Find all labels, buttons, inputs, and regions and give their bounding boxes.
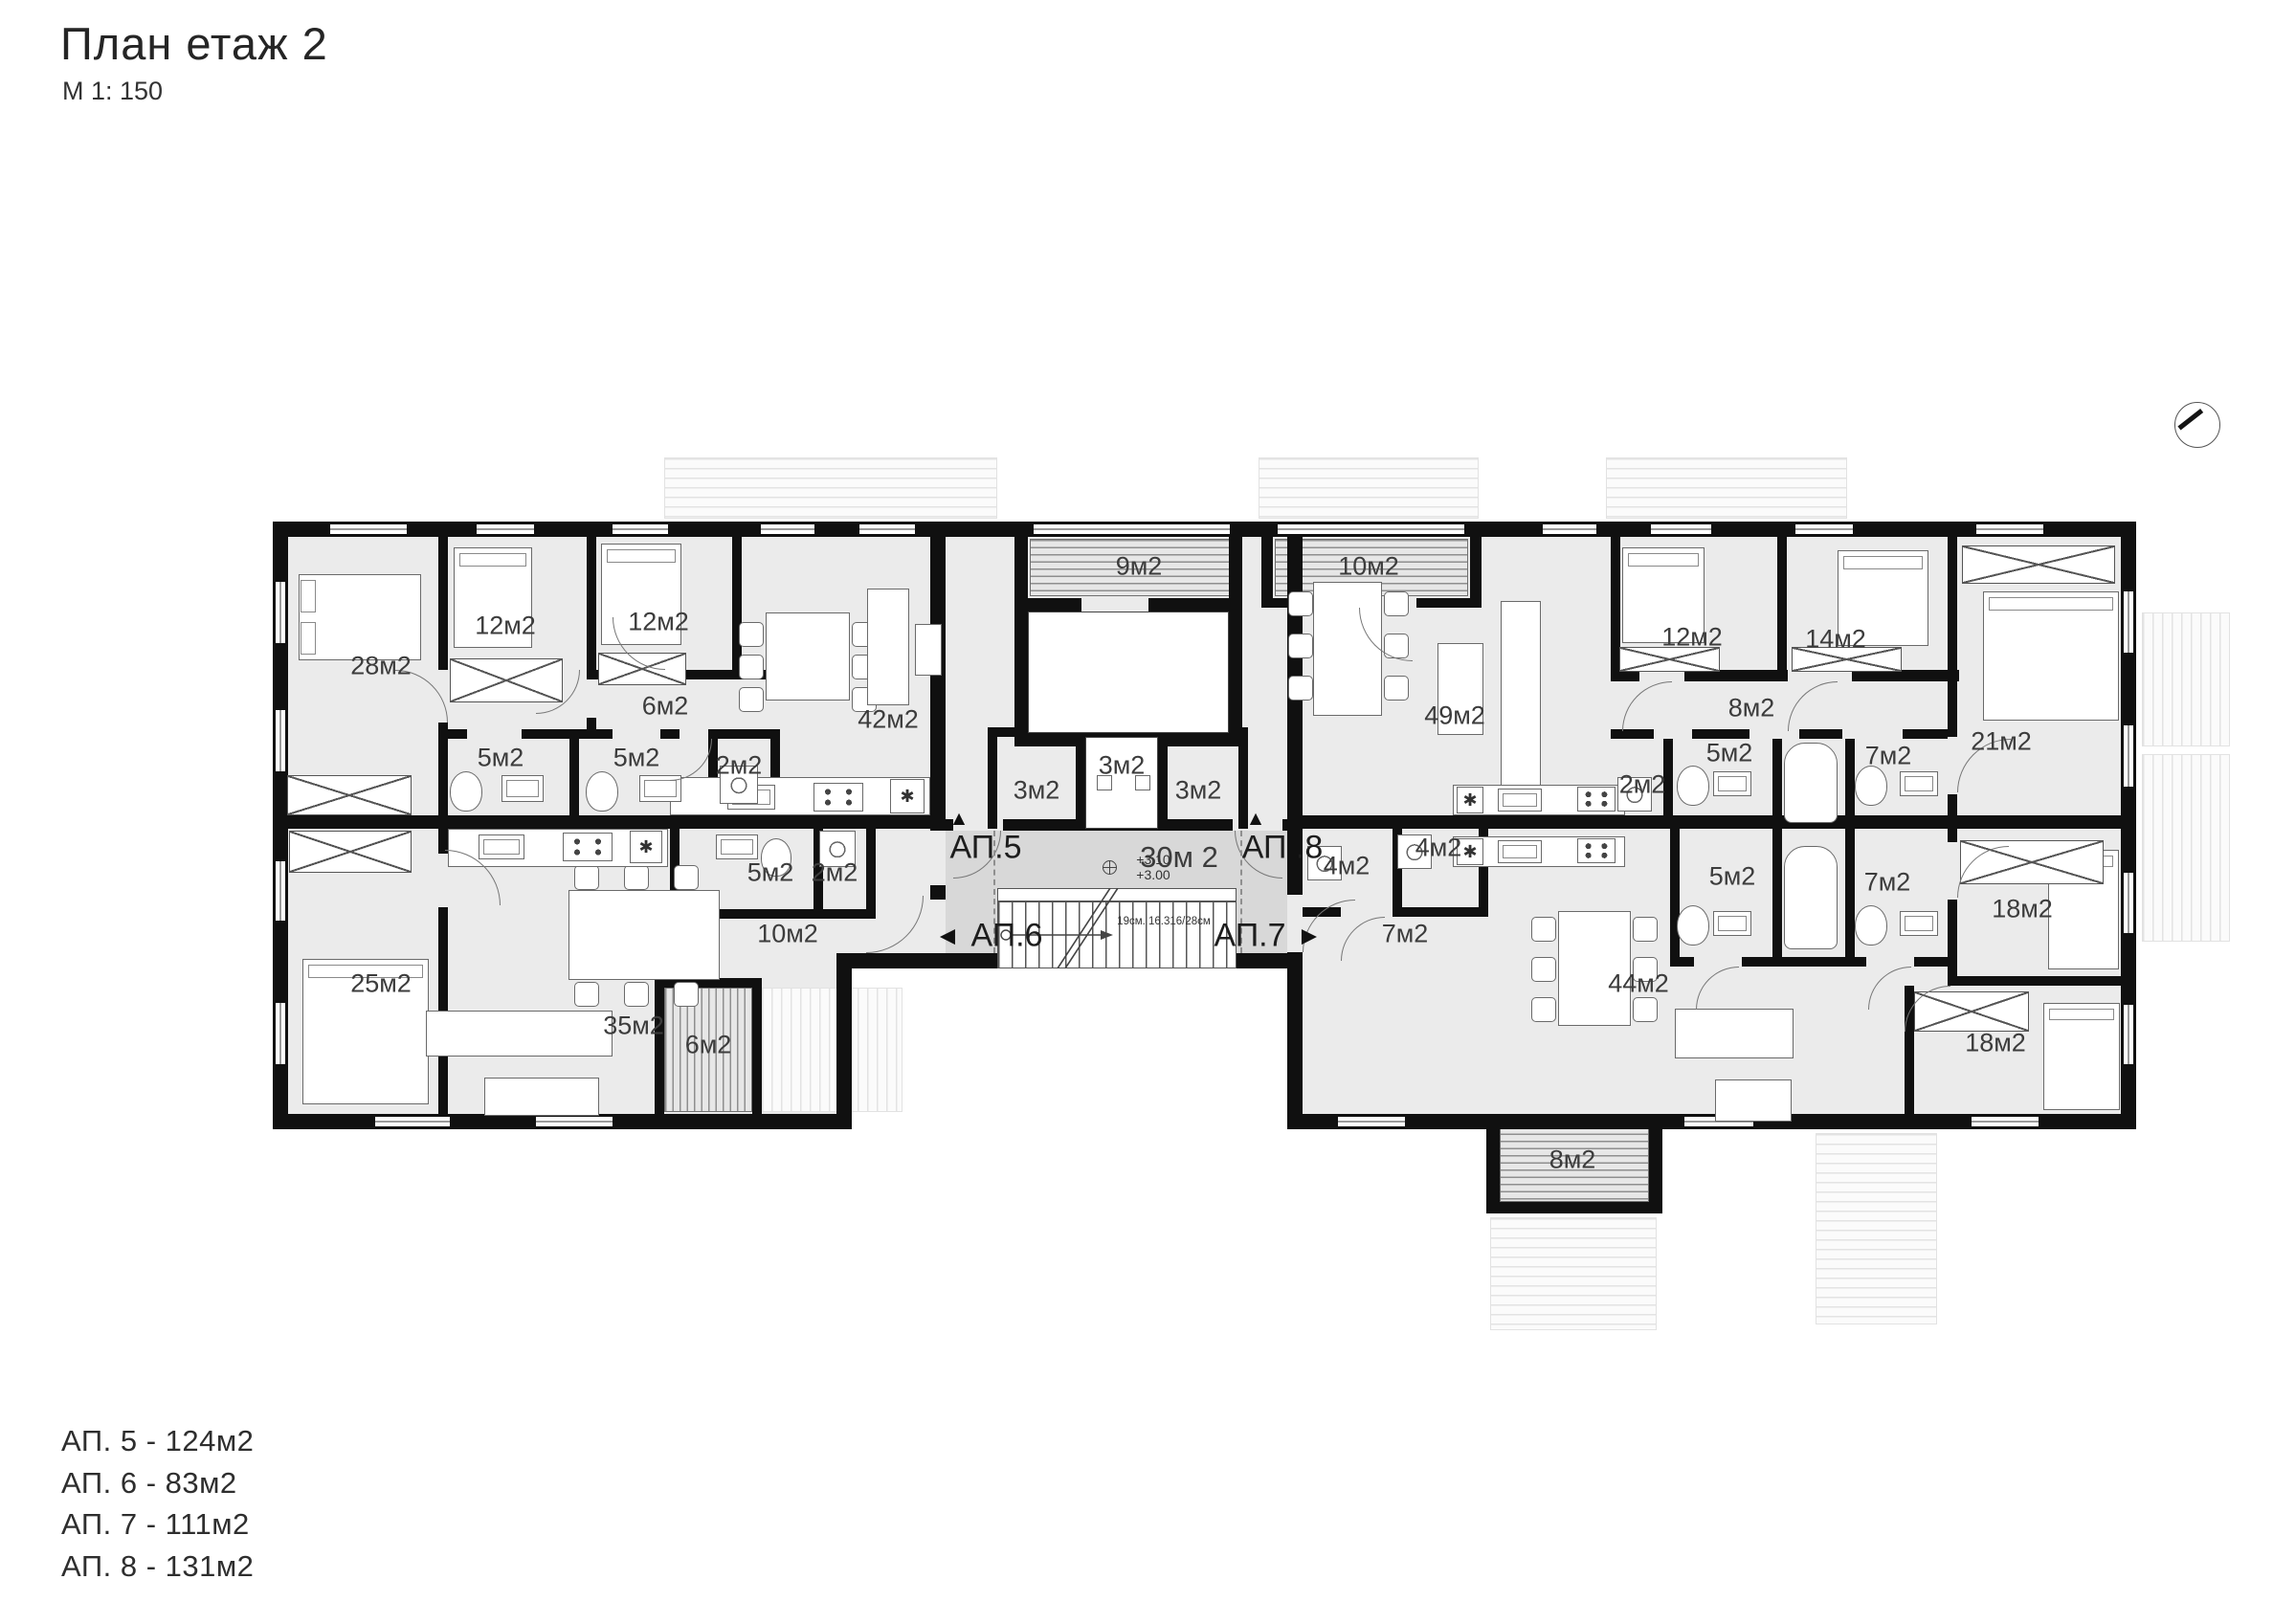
terrace-hatch bbox=[664, 457, 997, 519]
window bbox=[1278, 524, 1464, 534]
sink-icon bbox=[1713, 771, 1751, 796]
window bbox=[375, 1117, 450, 1126]
bed bbox=[299, 574, 421, 660]
window bbox=[276, 710, 285, 771]
room-label: 12м2 bbox=[475, 612, 536, 641]
wall bbox=[1229, 537, 1242, 598]
window bbox=[276, 1003, 285, 1064]
room-label: 2м2 bbox=[716, 751, 763, 781]
wall bbox=[1742, 957, 1866, 967]
room-label: 42м2 bbox=[858, 705, 919, 735]
wall bbox=[1416, 598, 1482, 608]
wall bbox=[1014, 612, 1028, 746]
wall bbox=[1777, 537, 1787, 681]
window bbox=[2124, 1005, 2133, 1064]
window bbox=[2124, 591, 2133, 653]
wall bbox=[1772, 829, 1782, 957]
chair bbox=[624, 865, 649, 890]
sink-icon bbox=[1900, 911, 1938, 936]
chair bbox=[1288, 634, 1313, 658]
chair bbox=[1531, 957, 1556, 982]
dining-table bbox=[766, 612, 850, 701]
wall bbox=[273, 815, 930, 829]
stove-icon bbox=[1577, 787, 1616, 812]
room-label: 7м2 bbox=[1864, 868, 1911, 898]
pillow bbox=[459, 553, 526, 567]
entry-direction-icon: ▲ bbox=[1246, 808, 1266, 831]
chair bbox=[624, 982, 649, 1007]
wall bbox=[1486, 1202, 1662, 1213]
wall bbox=[988, 737, 997, 829]
apartment-entry-label: АП.7 bbox=[1214, 918, 1285, 955]
appliance-icon: ✱ bbox=[630, 831, 662, 863]
room-label: 8м2 bbox=[1549, 1146, 1596, 1175]
chair bbox=[674, 865, 699, 890]
sink-icon bbox=[479, 834, 524, 859]
window bbox=[1034, 524, 1230, 534]
room-label: 5м2 bbox=[747, 858, 794, 888]
legend-item: АП. 5 - 124м2 bbox=[61, 1420, 254, 1462]
sink-icon bbox=[716, 834, 758, 859]
chair bbox=[1531, 917, 1556, 942]
toilet-icon bbox=[1677, 905, 1709, 945]
pillow bbox=[301, 622, 316, 655]
room-label: 4м2 bbox=[1324, 852, 1370, 881]
wall bbox=[1772, 739, 1782, 815]
wall bbox=[836, 968, 852, 1129]
stove-icon bbox=[813, 783, 863, 812]
wall bbox=[1076, 737, 1085, 829]
room-label: 7м2 bbox=[1382, 920, 1429, 949]
room-label: 10м2 bbox=[757, 920, 818, 949]
dining-table bbox=[568, 890, 720, 980]
sink-icon bbox=[1900, 771, 1938, 796]
sink-icon bbox=[1498, 840, 1542, 863]
terrace-hatch bbox=[1816, 1133, 1937, 1324]
window bbox=[1976, 524, 2043, 534]
window bbox=[2124, 873, 2133, 933]
chair bbox=[1633, 917, 1658, 942]
wall bbox=[752, 978, 762, 1114]
sink-icon bbox=[1713, 911, 1751, 936]
window bbox=[2124, 725, 2133, 787]
room-label: 18м2 bbox=[1992, 895, 2053, 924]
wall bbox=[1670, 829, 1680, 957]
wall bbox=[587, 537, 596, 670]
chair bbox=[574, 982, 599, 1007]
wall bbox=[1014, 537, 1028, 598]
furniture bbox=[1715, 1079, 1792, 1122]
room-label: 28м2 bbox=[350, 652, 412, 681]
wall bbox=[1393, 907, 1488, 917]
window bbox=[1338, 1117, 1405, 1126]
wall bbox=[1261, 537, 1273, 608]
toilet-icon bbox=[586, 771, 618, 812]
stove-icon bbox=[563, 833, 613, 861]
chair bbox=[674, 982, 699, 1007]
room-label: 5м2 bbox=[1709, 862, 1756, 892]
room-label: 12м2 bbox=[1661, 623, 1723, 653]
wall bbox=[1158, 737, 1168, 829]
terrace-hatch bbox=[2142, 754, 2230, 942]
room-label: 2м2 bbox=[1619, 770, 1666, 800]
elevation-upper: +3.10 bbox=[1136, 852, 1170, 867]
dining-table bbox=[1313, 582, 1382, 716]
wall bbox=[930, 522, 946, 831]
wall bbox=[1948, 794, 1957, 815]
room-label: 10м2 bbox=[1338, 552, 1399, 582]
compass-needle bbox=[2177, 409, 2203, 430]
wardrobe bbox=[1962, 545, 2115, 584]
appliance-icon: ✱ bbox=[890, 779, 925, 813]
wall bbox=[1148, 598, 1242, 612]
chair bbox=[739, 687, 764, 712]
wall bbox=[1948, 976, 2136, 986]
room-label: 9м2 bbox=[1116, 552, 1163, 582]
room-label: 3м2 bbox=[1014, 776, 1060, 806]
wall bbox=[1670, 957, 1694, 967]
room-label: 7м2 bbox=[1865, 742, 1912, 771]
toilet-icon bbox=[1855, 766, 1887, 806]
toilet-icon bbox=[1677, 766, 1709, 806]
wall bbox=[1914, 957, 1948, 967]
bathtub-icon bbox=[1784, 743, 1838, 823]
wall bbox=[1845, 829, 1855, 957]
room-label: 5м2 bbox=[478, 744, 524, 773]
legend-item: АП. 8 - 131м2 bbox=[61, 1546, 254, 1588]
wall bbox=[587, 729, 613, 739]
floor-plan: ✱✱✱✱28м212м212м26м25м25м22м242м225м235м2… bbox=[0, 0, 2273, 1624]
room-label: 14м2 bbox=[1805, 625, 1866, 655]
bathtub-icon bbox=[1784, 846, 1838, 949]
chair bbox=[1288, 591, 1313, 616]
room-label: 18м2 bbox=[1965, 1029, 2026, 1058]
room-label: 5м2 bbox=[1706, 739, 1753, 768]
pillow bbox=[1989, 597, 2113, 611]
elevation-lower: +3.00 bbox=[1136, 867, 1170, 882]
room-label: 3м2 bbox=[1099, 751, 1146, 781]
wall bbox=[1948, 829, 1957, 842]
window bbox=[536, 1117, 613, 1126]
terrace-hatch bbox=[1606, 457, 1847, 519]
wall bbox=[438, 729, 467, 739]
wall bbox=[1948, 900, 1957, 986]
legend-item: АП. 6 - 83м2 bbox=[61, 1462, 254, 1504]
pillow bbox=[1843, 556, 1923, 569]
room-label: 6м2 bbox=[642, 692, 689, 722]
toilet-icon bbox=[1855, 905, 1887, 945]
furniture bbox=[484, 1078, 599, 1116]
room-label: 8м2 bbox=[1728, 694, 1775, 723]
room-label: 44м2 bbox=[1608, 969, 1669, 999]
wall bbox=[930, 885, 946, 900]
wall bbox=[1303, 815, 2121, 829]
room-label: 3м2 bbox=[1175, 776, 1222, 806]
room-label: 35м2 bbox=[603, 1012, 664, 1041]
entry-direction-icon: ▲ bbox=[949, 808, 969, 831]
appliance-icon: ✱ bbox=[1457, 787, 1483, 813]
entry-direction-icon: ◀ bbox=[940, 924, 955, 948]
wall bbox=[1903, 729, 1948, 739]
apartment-entry-label: АП.6 bbox=[970, 918, 1042, 955]
pillow bbox=[2049, 1009, 2114, 1020]
sofa bbox=[1675, 1009, 1794, 1058]
apartment-entry-label: АП.5 bbox=[949, 830, 1021, 867]
wall bbox=[438, 537, 448, 670]
floorplan-page: { "header": { "title": "План етаж 2", "s… bbox=[0, 0, 2273, 1624]
sink-icon bbox=[1498, 789, 1542, 812]
wall bbox=[1845, 739, 1855, 815]
window bbox=[1651, 524, 1711, 534]
chair bbox=[574, 865, 599, 890]
chair bbox=[1633, 997, 1658, 1022]
pillow bbox=[301, 580, 316, 612]
window bbox=[859, 524, 915, 534]
bed bbox=[1983, 591, 2119, 721]
wall bbox=[655, 978, 664, 1114]
window bbox=[613, 524, 668, 534]
wall bbox=[1014, 598, 1081, 612]
window bbox=[477, 524, 534, 534]
chair bbox=[1288, 676, 1313, 701]
furniture bbox=[915, 624, 942, 676]
apartment-entry-label: АП .8 bbox=[1242, 830, 1324, 867]
terrace-hatch bbox=[1490, 1217, 1657, 1330]
window bbox=[1972, 1117, 2039, 1126]
room-label: 49м2 bbox=[1424, 701, 1485, 731]
shaft bbox=[1028, 612, 1229, 733]
sofa bbox=[1501, 601, 1541, 810]
stair-note: 19см. 16.316/28см bbox=[1117, 916, 1211, 927]
room-label: 25м2 bbox=[350, 969, 412, 999]
toilet-icon bbox=[450, 771, 482, 812]
area-legend: АП. 5 - 124м2АП. 6 - 83м2АП. 7 - 111м2АП… bbox=[61, 1420, 254, 1587]
chair bbox=[1384, 676, 1409, 701]
window bbox=[1543, 524, 1596, 534]
room-label: 4м2 bbox=[1415, 834, 1462, 863]
wall bbox=[1948, 537, 1957, 737]
sofa bbox=[426, 1011, 613, 1057]
wall bbox=[1649, 1114, 1662, 1213]
wall bbox=[660, 729, 680, 739]
wardrobe bbox=[287, 775, 412, 815]
pillow bbox=[607, 549, 676, 563]
window bbox=[276, 582, 285, 643]
elevation-marker-icon bbox=[1103, 860, 1117, 875]
sink-icon bbox=[501, 775, 544, 802]
window bbox=[1795, 524, 1853, 534]
stove-icon bbox=[1577, 838, 1616, 863]
pillow bbox=[1628, 553, 1699, 567]
north-indicator bbox=[2174, 402, 2220, 448]
terrace-hatch bbox=[761, 988, 903, 1112]
room-label: 6м2 bbox=[685, 1031, 732, 1060]
room-label: 5м2 bbox=[613, 744, 660, 773]
wall bbox=[708, 729, 780, 739]
window bbox=[330, 524, 407, 534]
window bbox=[276, 861, 285, 921]
room-label: 2м2 bbox=[812, 858, 858, 888]
window bbox=[761, 524, 814, 534]
wall bbox=[1486, 1114, 1500, 1213]
entry-direction-icon: ▶ bbox=[1302, 924, 1317, 948]
wardrobe bbox=[289, 831, 412, 873]
wall bbox=[1287, 952, 1303, 1129]
room-label: 12м2 bbox=[628, 608, 689, 637]
terrace-hatch bbox=[1259, 457, 1479, 519]
wall bbox=[569, 739, 579, 815]
wall bbox=[1470, 537, 1482, 608]
legend-item: АП. 7 - 111м2 bbox=[61, 1503, 254, 1546]
chair bbox=[739, 622, 764, 647]
wall bbox=[522, 729, 596, 739]
wall bbox=[1692, 729, 1749, 739]
chair bbox=[1531, 997, 1556, 1022]
room-label: 21м2 bbox=[1971, 727, 2032, 757]
chair bbox=[739, 655, 764, 679]
sofa bbox=[867, 589, 909, 705]
terrace-hatch bbox=[2142, 612, 2230, 746]
wall bbox=[1229, 612, 1242, 746]
